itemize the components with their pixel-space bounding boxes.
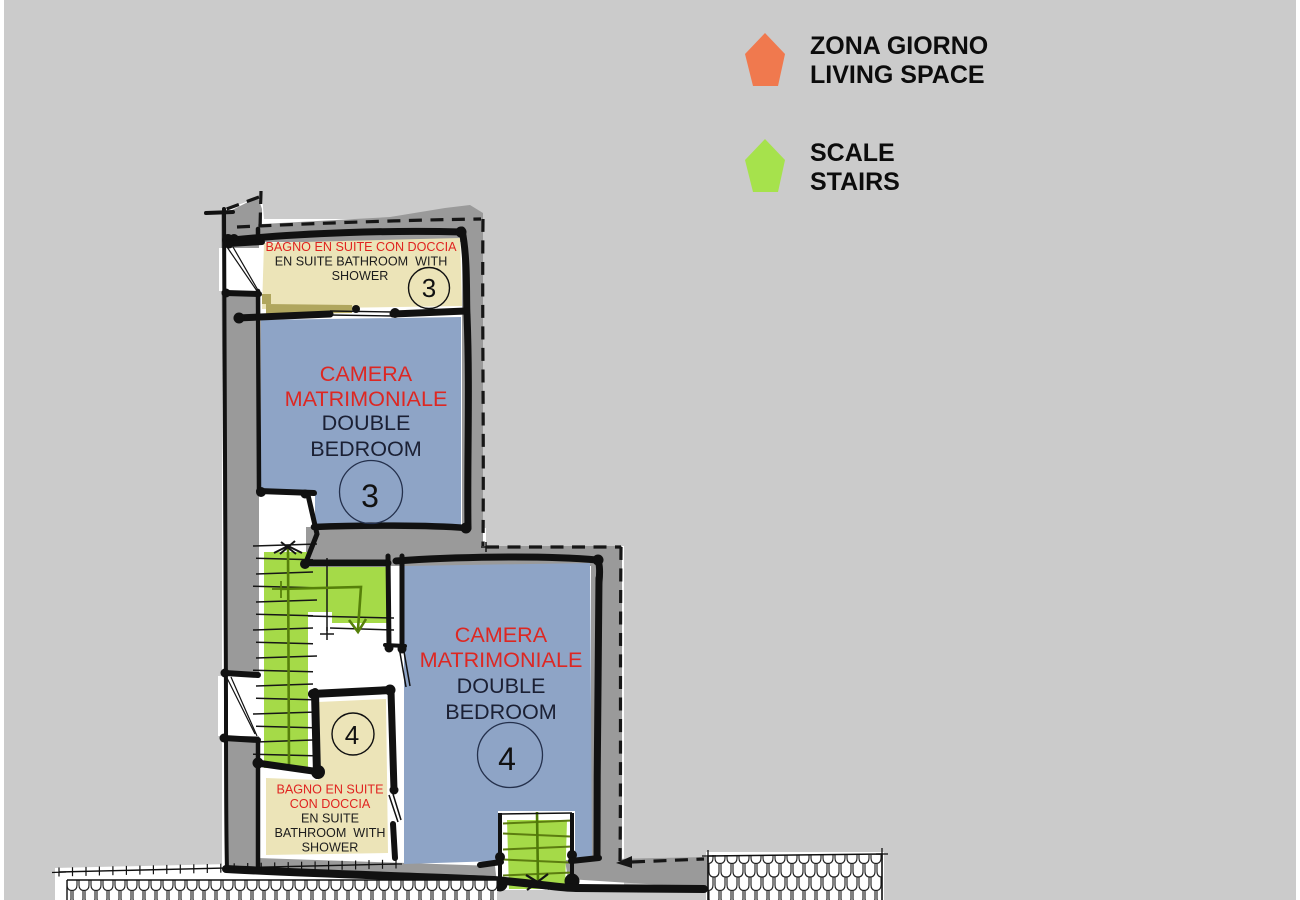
svg-text:ZONA GIORNO: ZONA GIORNO: [810, 32, 988, 60]
svg-text:3: 3: [361, 478, 379, 514]
svg-text:BATHROOM WITH: BATHROOM WITH: [274, 826, 385, 840]
svg-text:SHOWER: SHOWER: [332, 269, 389, 283]
svg-text:BAGNO EN SUITE: BAGNO EN SUITE: [276, 783, 383, 797]
svg-text:BEDROOM: BEDROOM: [445, 699, 557, 724]
svg-text:SHOWER: SHOWER: [302, 841, 359, 855]
svg-text:MATRIMONIALE: MATRIMONIALE: [285, 386, 448, 411]
svg-text:DOUBLE: DOUBLE: [457, 673, 546, 698]
svg-text:EN SUITE: EN SUITE: [301, 812, 359, 826]
svg-text:3: 3: [422, 273, 436, 303]
svg-text:CAMERA: CAMERA: [320, 361, 413, 386]
svg-text:DOUBLE: DOUBLE: [322, 410, 411, 435]
svg-text:LIVING SPACE: LIVING SPACE: [810, 61, 985, 89]
svg-text:EN SUITE BATHROOM WITH: EN SUITE BATHROOM WITH: [275, 255, 448, 269]
svg-text:CON DOCCIA: CON DOCCIA: [290, 797, 371, 811]
svg-text:BAGNO EN SUITE CON DOCCIA: BAGNO EN SUITE CON DOCCIA: [265, 240, 457, 254]
svg-text:4: 4: [498, 741, 516, 777]
svg-text:MATRIMONIALE: MATRIMONIALE: [420, 647, 583, 672]
svg-text:SCALE: SCALE: [810, 139, 895, 167]
svg-text:CAMERA: CAMERA: [455, 622, 548, 647]
svg-text:4: 4: [345, 720, 359, 750]
svg-text:STAIRS: STAIRS: [810, 168, 900, 196]
svg-text:BEDROOM: BEDROOM: [310, 436, 422, 461]
